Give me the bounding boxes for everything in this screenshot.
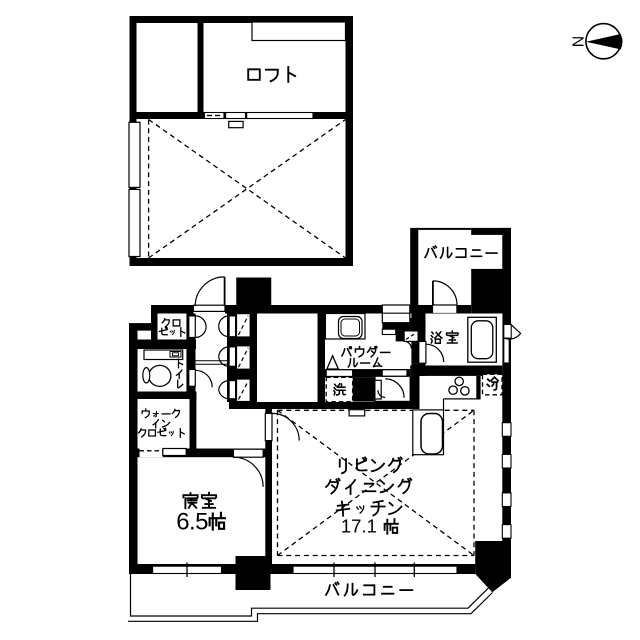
svg-text:N: N bbox=[569, 36, 586, 48]
svg-text:17.1: 17.1 bbox=[341, 515, 377, 536]
svg-text:6.5: 6.5 bbox=[176, 509, 208, 536]
